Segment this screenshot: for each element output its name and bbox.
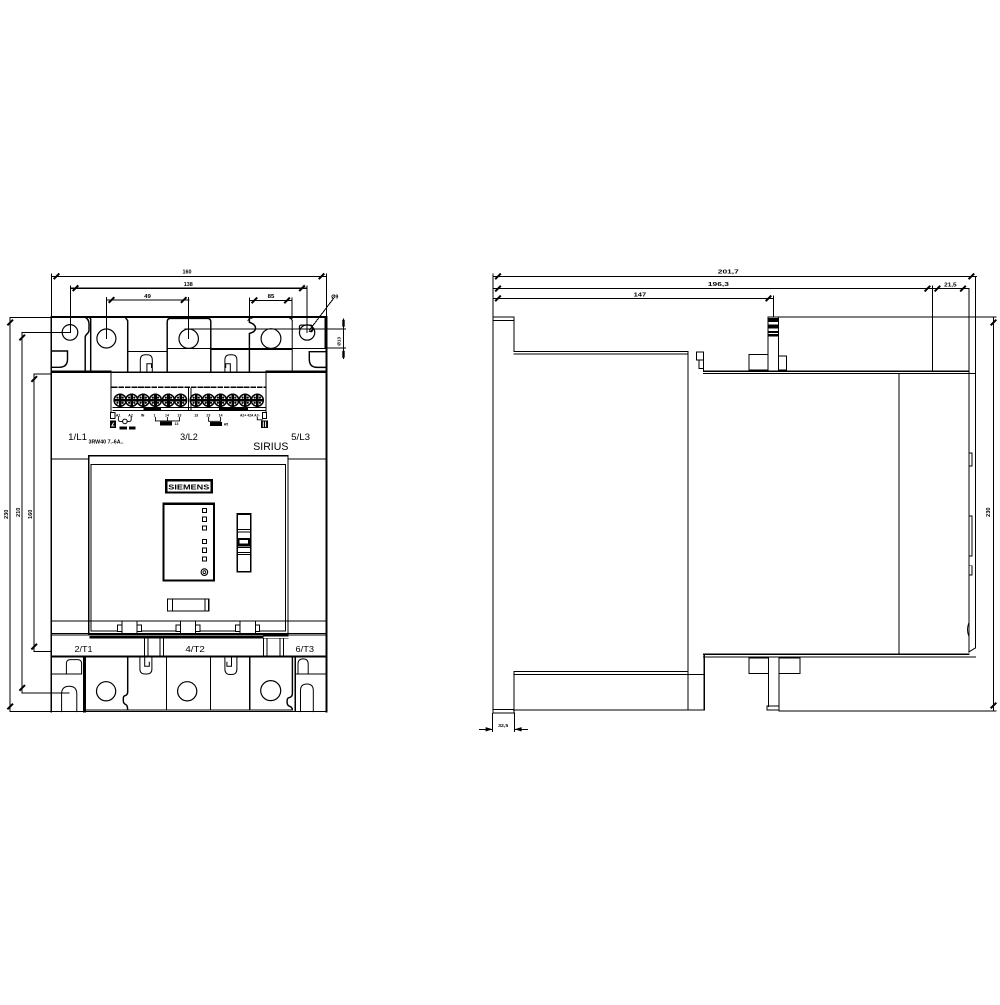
svg-text:23: 23 bbox=[206, 413, 210, 417]
svg-text:230: 230 bbox=[986, 507, 992, 517]
svg-text:147: 147 bbox=[634, 293, 647, 299]
svg-text:85: 85 bbox=[268, 294, 275, 300]
svg-text:3RW40 7.-6A..: 3RW40 7.-6A.. bbox=[89, 440, 125, 446]
svg-text:3/L2: 3/L2 bbox=[180, 432, 198, 442]
svg-text:H5: H5 bbox=[224, 423, 228, 427]
svg-text:A2: A2 bbox=[128, 413, 133, 417]
svg-text:201,7: 201,7 bbox=[718, 270, 739, 276]
svg-text:160: 160 bbox=[28, 509, 34, 519]
svg-text:210: 210 bbox=[16, 507, 22, 517]
svg-text:1: 1 bbox=[154, 413, 156, 417]
svg-text:32,5: 32,5 bbox=[498, 723, 508, 729]
svg-text:6/T3: 6/T3 bbox=[296, 644, 315, 654]
svg-text:13: 13 bbox=[194, 413, 198, 417]
svg-text:IN: IN bbox=[141, 413, 145, 417]
svg-text:14: 14 bbox=[219, 413, 223, 417]
svg-text:A2+ 42A A2-: A2+ 42A A2- bbox=[240, 413, 260, 417]
svg-text:SIEMENS: SIEMENS bbox=[168, 483, 209, 492]
svg-text:13: 13 bbox=[177, 413, 181, 417]
svg-text:4/T2: 4/T2 bbox=[185, 644, 205, 654]
svg-text:1/L1: 1/L1 bbox=[68, 432, 87, 442]
svg-text:138: 138 bbox=[184, 282, 193, 288]
svg-text:49: 49 bbox=[144, 294, 151, 300]
svg-text:13: 13 bbox=[175, 422, 179, 426]
svg-text:196,3: 196,3 bbox=[708, 282, 729, 288]
svg-text:21,5: 21,5 bbox=[944, 282, 957, 288]
svg-text:Ø13: Ø13 bbox=[336, 337, 342, 346]
svg-text:Ø9: Ø9 bbox=[331, 294, 338, 300]
svg-text:230: 230 bbox=[4, 509, 10, 519]
svg-text:2/T1: 2/T1 bbox=[75, 644, 93, 654]
svg-text:14: 14 bbox=[165, 413, 169, 417]
svg-text:160: 160 bbox=[183, 270, 192, 276]
svg-text:5/L3: 5/L3 bbox=[291, 432, 310, 442]
svg-text:SIRIUS: SIRIUS bbox=[253, 441, 288, 453]
